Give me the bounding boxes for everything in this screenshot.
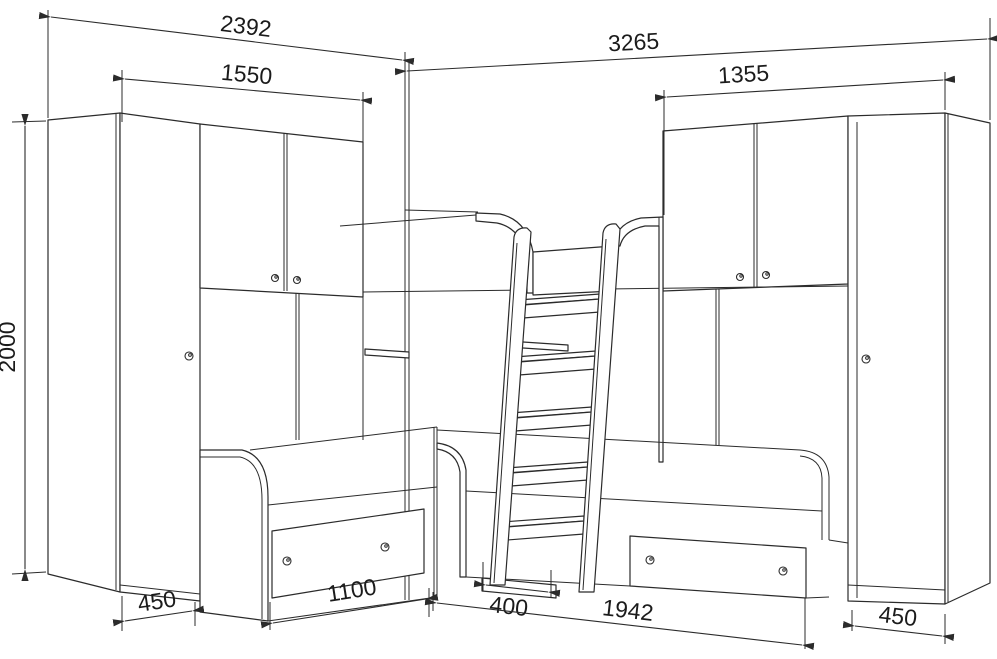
svg-text:450: 450 (877, 601, 918, 631)
left-wardrobe (48, 113, 200, 601)
dimension-1942: 1942 (433, 592, 805, 649)
dimension-3265: 3265 (407, 18, 990, 120)
svg-text:3265: 3265 (607, 28, 660, 57)
right-wall-panels (716, 289, 719, 445)
left-overhead-cabinet (200, 124, 363, 297)
svg-text:450: 450 (136, 585, 178, 616)
wall-shelf (365, 349, 409, 358)
dimension-450-right: 450 (852, 601, 945, 644)
svg-text:1550: 1550 (220, 59, 273, 89)
left-bed (200, 427, 437, 621)
svg-text:1942: 1942 (601, 594, 655, 626)
svg-text:400: 400 (488, 591, 529, 621)
technical-drawing-canvas: 2392 1550 3265 1355 2000 (0, 0, 997, 659)
left-wall-panels (296, 290, 363, 440)
dimension-2000: 2000 (0, 121, 46, 574)
svg-text:1355: 1355 (717, 59, 770, 88)
svg-text:2392: 2392 (219, 10, 273, 42)
svg-text:2000: 2000 (0, 321, 20, 372)
furniture-set (48, 55, 990, 621)
furniture-drawing-svg: 2392 1550 3265 1355 2000 (0, 0, 997, 659)
right-wardrobe (848, 113, 990, 604)
